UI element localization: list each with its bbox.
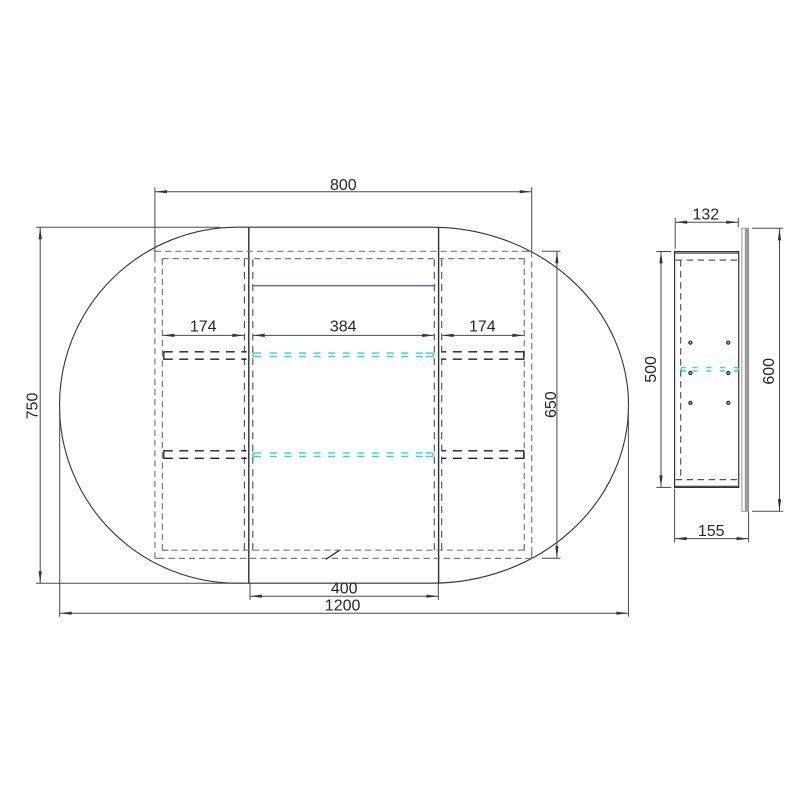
svg-text:132: 132 xyxy=(692,206,719,223)
svg-text:600: 600 xyxy=(761,358,778,385)
svg-text:384: 384 xyxy=(330,319,357,336)
svg-text:1200: 1200 xyxy=(325,597,361,614)
svg-text:500: 500 xyxy=(643,356,660,383)
svg-text:155: 155 xyxy=(698,523,725,540)
svg-text:800: 800 xyxy=(330,177,357,194)
svg-text:750: 750 xyxy=(25,393,42,420)
svg-text:174: 174 xyxy=(469,319,496,336)
svg-text:174: 174 xyxy=(190,319,217,336)
svg-text:650: 650 xyxy=(543,391,560,418)
svg-text:400: 400 xyxy=(331,581,358,598)
